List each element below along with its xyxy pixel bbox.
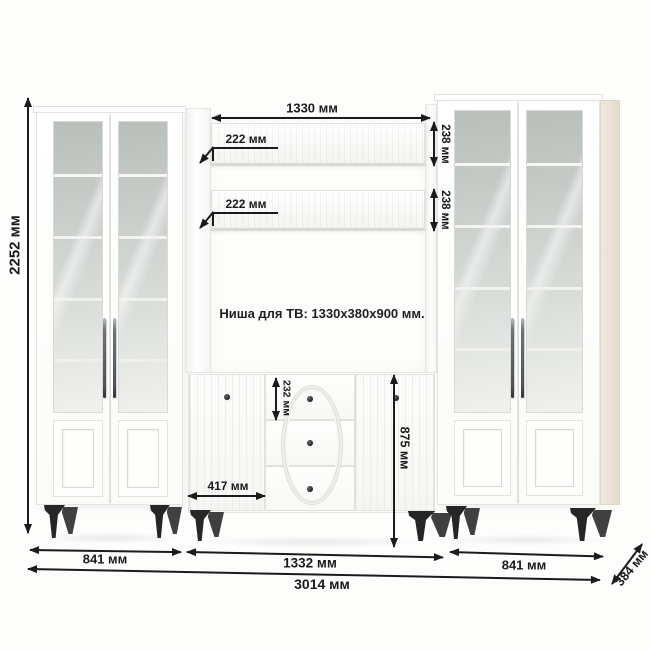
dim-label-total-width: 3014 мм xyxy=(294,577,350,591)
dim-label-shelf-depth-upper: 222 мм xyxy=(225,133,266,145)
cabinet-leg xyxy=(570,508,612,541)
dim-label-left-cabinet-width: 841 мм xyxy=(83,553,128,566)
dim-label-center-section-width: 1332 мм xyxy=(283,556,337,570)
left-cabinet-glass-door-right xyxy=(118,121,168,413)
right-cabinet-glass-door-right xyxy=(526,110,583,413)
left-cabinet-lower-panel-right xyxy=(118,420,168,497)
dim-arrow-shelf-front-lower xyxy=(433,189,435,231)
cabinet-leg xyxy=(44,505,78,538)
dim-label-shelf-front-upper: 238 мм xyxy=(438,124,450,163)
left-cabinet-door-gap xyxy=(109,114,111,503)
dim-arrow-chest-height xyxy=(393,375,395,547)
right-cabinet-glass-door-left xyxy=(454,110,511,413)
dim-label-depth: 384 мм xyxy=(613,548,650,589)
right-cabinet-side-panel xyxy=(600,100,620,505)
dim-line-shelf-depth-lower xyxy=(212,212,278,214)
chest-leg xyxy=(190,510,224,541)
dim-arrow-niche-width xyxy=(212,117,430,119)
right-cabinet-handle xyxy=(521,318,524,398)
cabinet-leg xyxy=(446,506,480,539)
chest-door-knob xyxy=(224,394,230,400)
tv-unit-right-pillar xyxy=(425,104,437,373)
left-cabinet-glass-door-left xyxy=(53,121,103,413)
chest-drawer-knob xyxy=(307,486,313,492)
dim-label-top-drawer-height: 232 мм xyxy=(281,380,292,416)
dim-label-chest-door-width: 417 мм xyxy=(207,480,248,492)
dim-arrow-total-height xyxy=(27,98,29,533)
dim-label-shelf-depth-lower: 222 мм xyxy=(225,198,266,210)
left-cabinet-handle xyxy=(103,318,106,398)
dim-label-chest-height: 875 мм xyxy=(398,427,411,470)
dim-label-niche-width: 1330 мм xyxy=(286,102,338,115)
dim-label-shelf-front-lower: 238 мм xyxy=(438,190,450,229)
right-cabinet-handle xyxy=(511,318,514,398)
furniture-dimension-diagram: 2252 мм 1330 мм 222 мм 222 мм 238 мм 238… xyxy=(0,0,650,650)
dim-arrow-top-drawer-height xyxy=(275,378,277,420)
right-cabinet-lower-panel-right xyxy=(526,420,583,496)
left-cabinet-handle xyxy=(113,318,116,398)
tv-niche-note: Ниша для ТВ: 1330x380x900 мм. xyxy=(212,306,432,321)
dim-label-right-cabinet-width: 841 мм xyxy=(502,559,547,572)
right-cabinet-door-gap xyxy=(517,102,519,503)
right-cabinet-lower-panel-left xyxy=(454,420,511,496)
chest-drawer-knob xyxy=(307,396,313,402)
dim-line-shelf-depth-upper xyxy=(212,147,278,149)
dim-arrow-shelf-front-upper xyxy=(433,122,435,166)
dim-label-total-height: 2252 мм xyxy=(8,215,23,275)
tv-unit-left-pillar xyxy=(185,108,211,373)
dim-arrow-chest-door-width xyxy=(188,495,265,497)
chest-drawer-knob xyxy=(307,440,313,446)
cabinet-leg xyxy=(150,505,182,538)
left-cabinet-lower-panel-left xyxy=(53,420,103,497)
